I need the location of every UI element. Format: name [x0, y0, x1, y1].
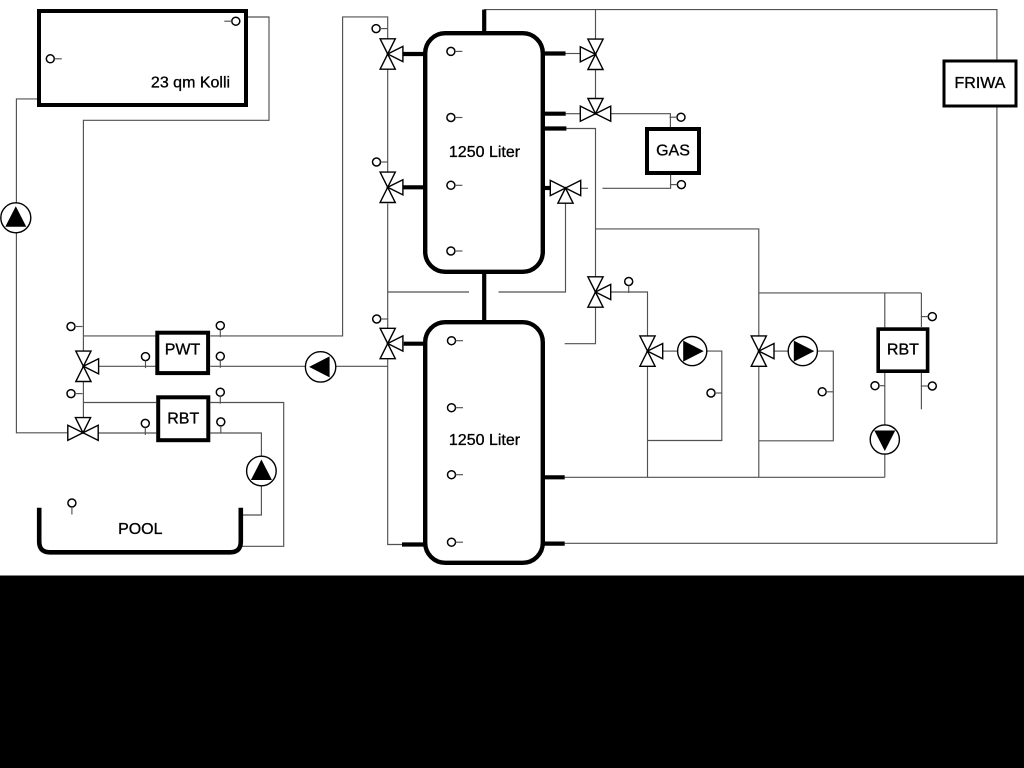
svg-text:FRIWA: FRIWA [955, 75, 1006, 92]
svg-text:POOL: POOL [118, 521, 163, 538]
svg-text:GAS: GAS [656, 143, 690, 160]
svg-text:1250 Liter: 1250 Liter [449, 144, 521, 161]
svg-text:1250 Liter: 1250 Liter [449, 432, 521, 449]
svg-text:RBT: RBT [887, 342, 919, 359]
svg-text:23 qm Kolli: 23 qm Kolli [151, 75, 230, 92]
svg-text:RBT: RBT [167, 410, 199, 427]
svg-text:PWT: PWT [165, 342, 201, 359]
